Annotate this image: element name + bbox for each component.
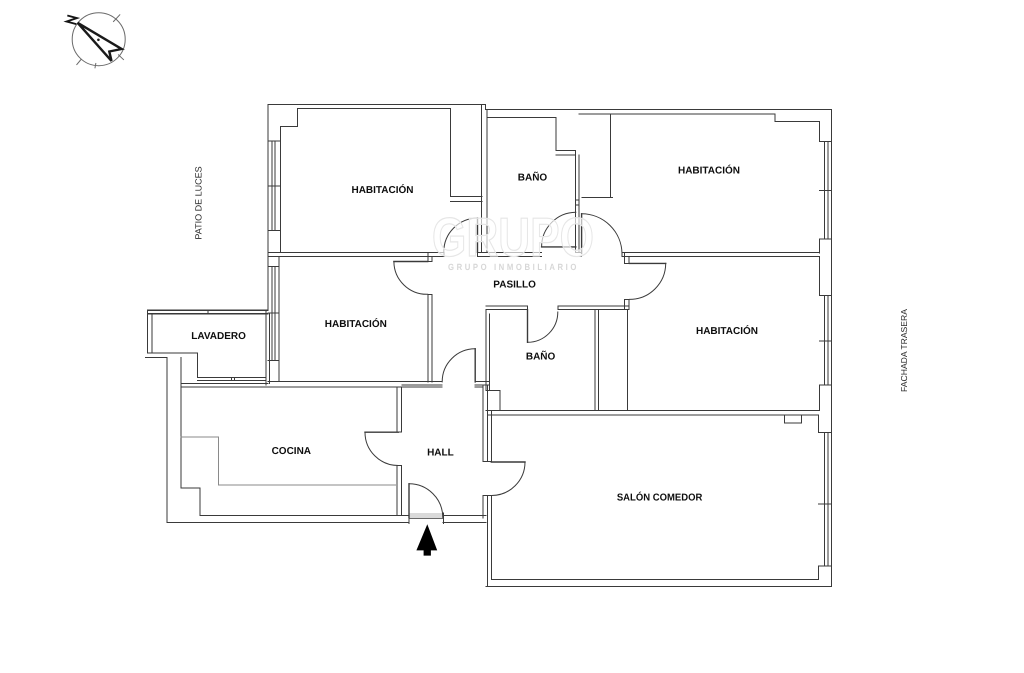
svg-text:LAVADERO: LAVADERO [191,331,246,342]
svg-text:HABITACIÓN: HABITACIÓN [325,318,387,330]
svg-text:FACHADA TRASERA: FACHADA TRASERA [899,309,909,392]
svg-text:HALL: HALL [427,448,454,459]
svg-text:BAÑO: BAÑO [518,172,548,184]
svg-text:PATIO DE LUCES: PATIO DE LUCES [193,166,203,239]
svg-text:HABITACIÓN: HABITACIÓN [678,165,740,177]
svg-text:PASILLO: PASILLO [493,280,536,291]
svg-text:BAÑO: BAÑO [526,351,556,363]
svg-text:GRUPO: GRUPO [432,206,594,268]
svg-text:GRUPO INMOBILIARIO: GRUPO INMOBILIARIO [448,262,579,272]
svg-text:HABITACIÓN: HABITACIÓN [696,325,758,337]
svg-text:COCINA: COCINA [272,446,311,457]
svg-text:SALÓN COMEDOR: SALÓN COMEDOR [617,491,703,503]
svg-text:HABITACIÓN: HABITACIÓN [351,184,413,196]
